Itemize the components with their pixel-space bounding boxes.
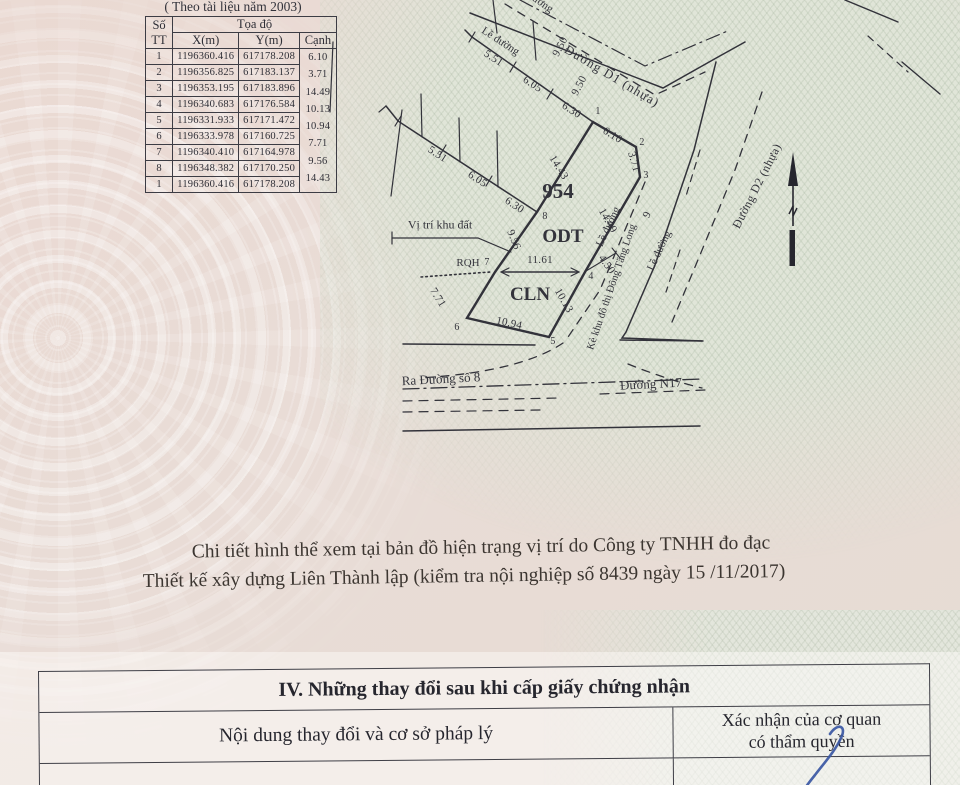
vertex-label: 5 (550, 337, 555, 348)
certificate-page: ( Theo tài liệu năm 2003) 5.51 6.05 6.30… (0, 0, 960, 785)
parcel-number-label: 954 (542, 180, 574, 202)
section-iv-table: IV. Những thay đổi sau khi cấp giấy chứn… (38, 663, 931, 785)
vertex-label: 7 (484, 258, 489, 269)
zone-odt-label: ODT (542, 227, 583, 247)
vertex-label: 8 (542, 212, 547, 223)
map-title-source: ( Theo tài liệu năm 2003) (164, 0, 301, 14)
vertex-label: 4 (588, 272, 593, 283)
survey-note-line1: Chi tiết hình thể xem tại bản đồ hiện tr… (192, 532, 771, 563)
split-dim: 11.61 (527, 255, 553, 267)
cadastral-map-drawing (0, 0, 960, 470)
vertex-label: 2 (639, 138, 644, 149)
zone-cln-label: CLN (510, 285, 550, 305)
header-y: Y(m) (239, 33, 299, 49)
vertex-label: 1 (595, 107, 600, 118)
header-toado: Tọa độ (173, 17, 337, 33)
rqh-label: RQH (456, 258, 479, 270)
survey-note-line2: Thiết kế xây dựng Liên Thành lập (kiểm t… (143, 561, 786, 593)
header-stt: SốTT (146, 17, 173, 49)
n17-label: Đường N17 (620, 376, 683, 393)
site-pointer-label: Vị trí khu đất (408, 219, 472, 232)
edge-length-column: 6.103.71 14.4910.13 10.947.71 9.5614.43 (299, 49, 336, 193)
vertex-label: 3 (643, 171, 648, 182)
vertex-label: 6 (454, 323, 459, 334)
column-header-content: Nội dung thay đổi và cơ sở pháp lý (39, 707, 673, 763)
north-arrow-icon (788, 152, 798, 266)
header-canh: Cạnh (299, 33, 336, 49)
coordinate-table: SốTT Tọa độ X(m) Y(m) Cạnh 11196360.4166… (145, 16, 337, 193)
column-header-confirmation: Xác nhận của cơ quan có thẩm quyền (673, 705, 929, 757)
table-row: 11196360.416617178.208 6.103.71 14.4910.… (146, 49, 337, 65)
header-x: X(m) (173, 33, 239, 49)
